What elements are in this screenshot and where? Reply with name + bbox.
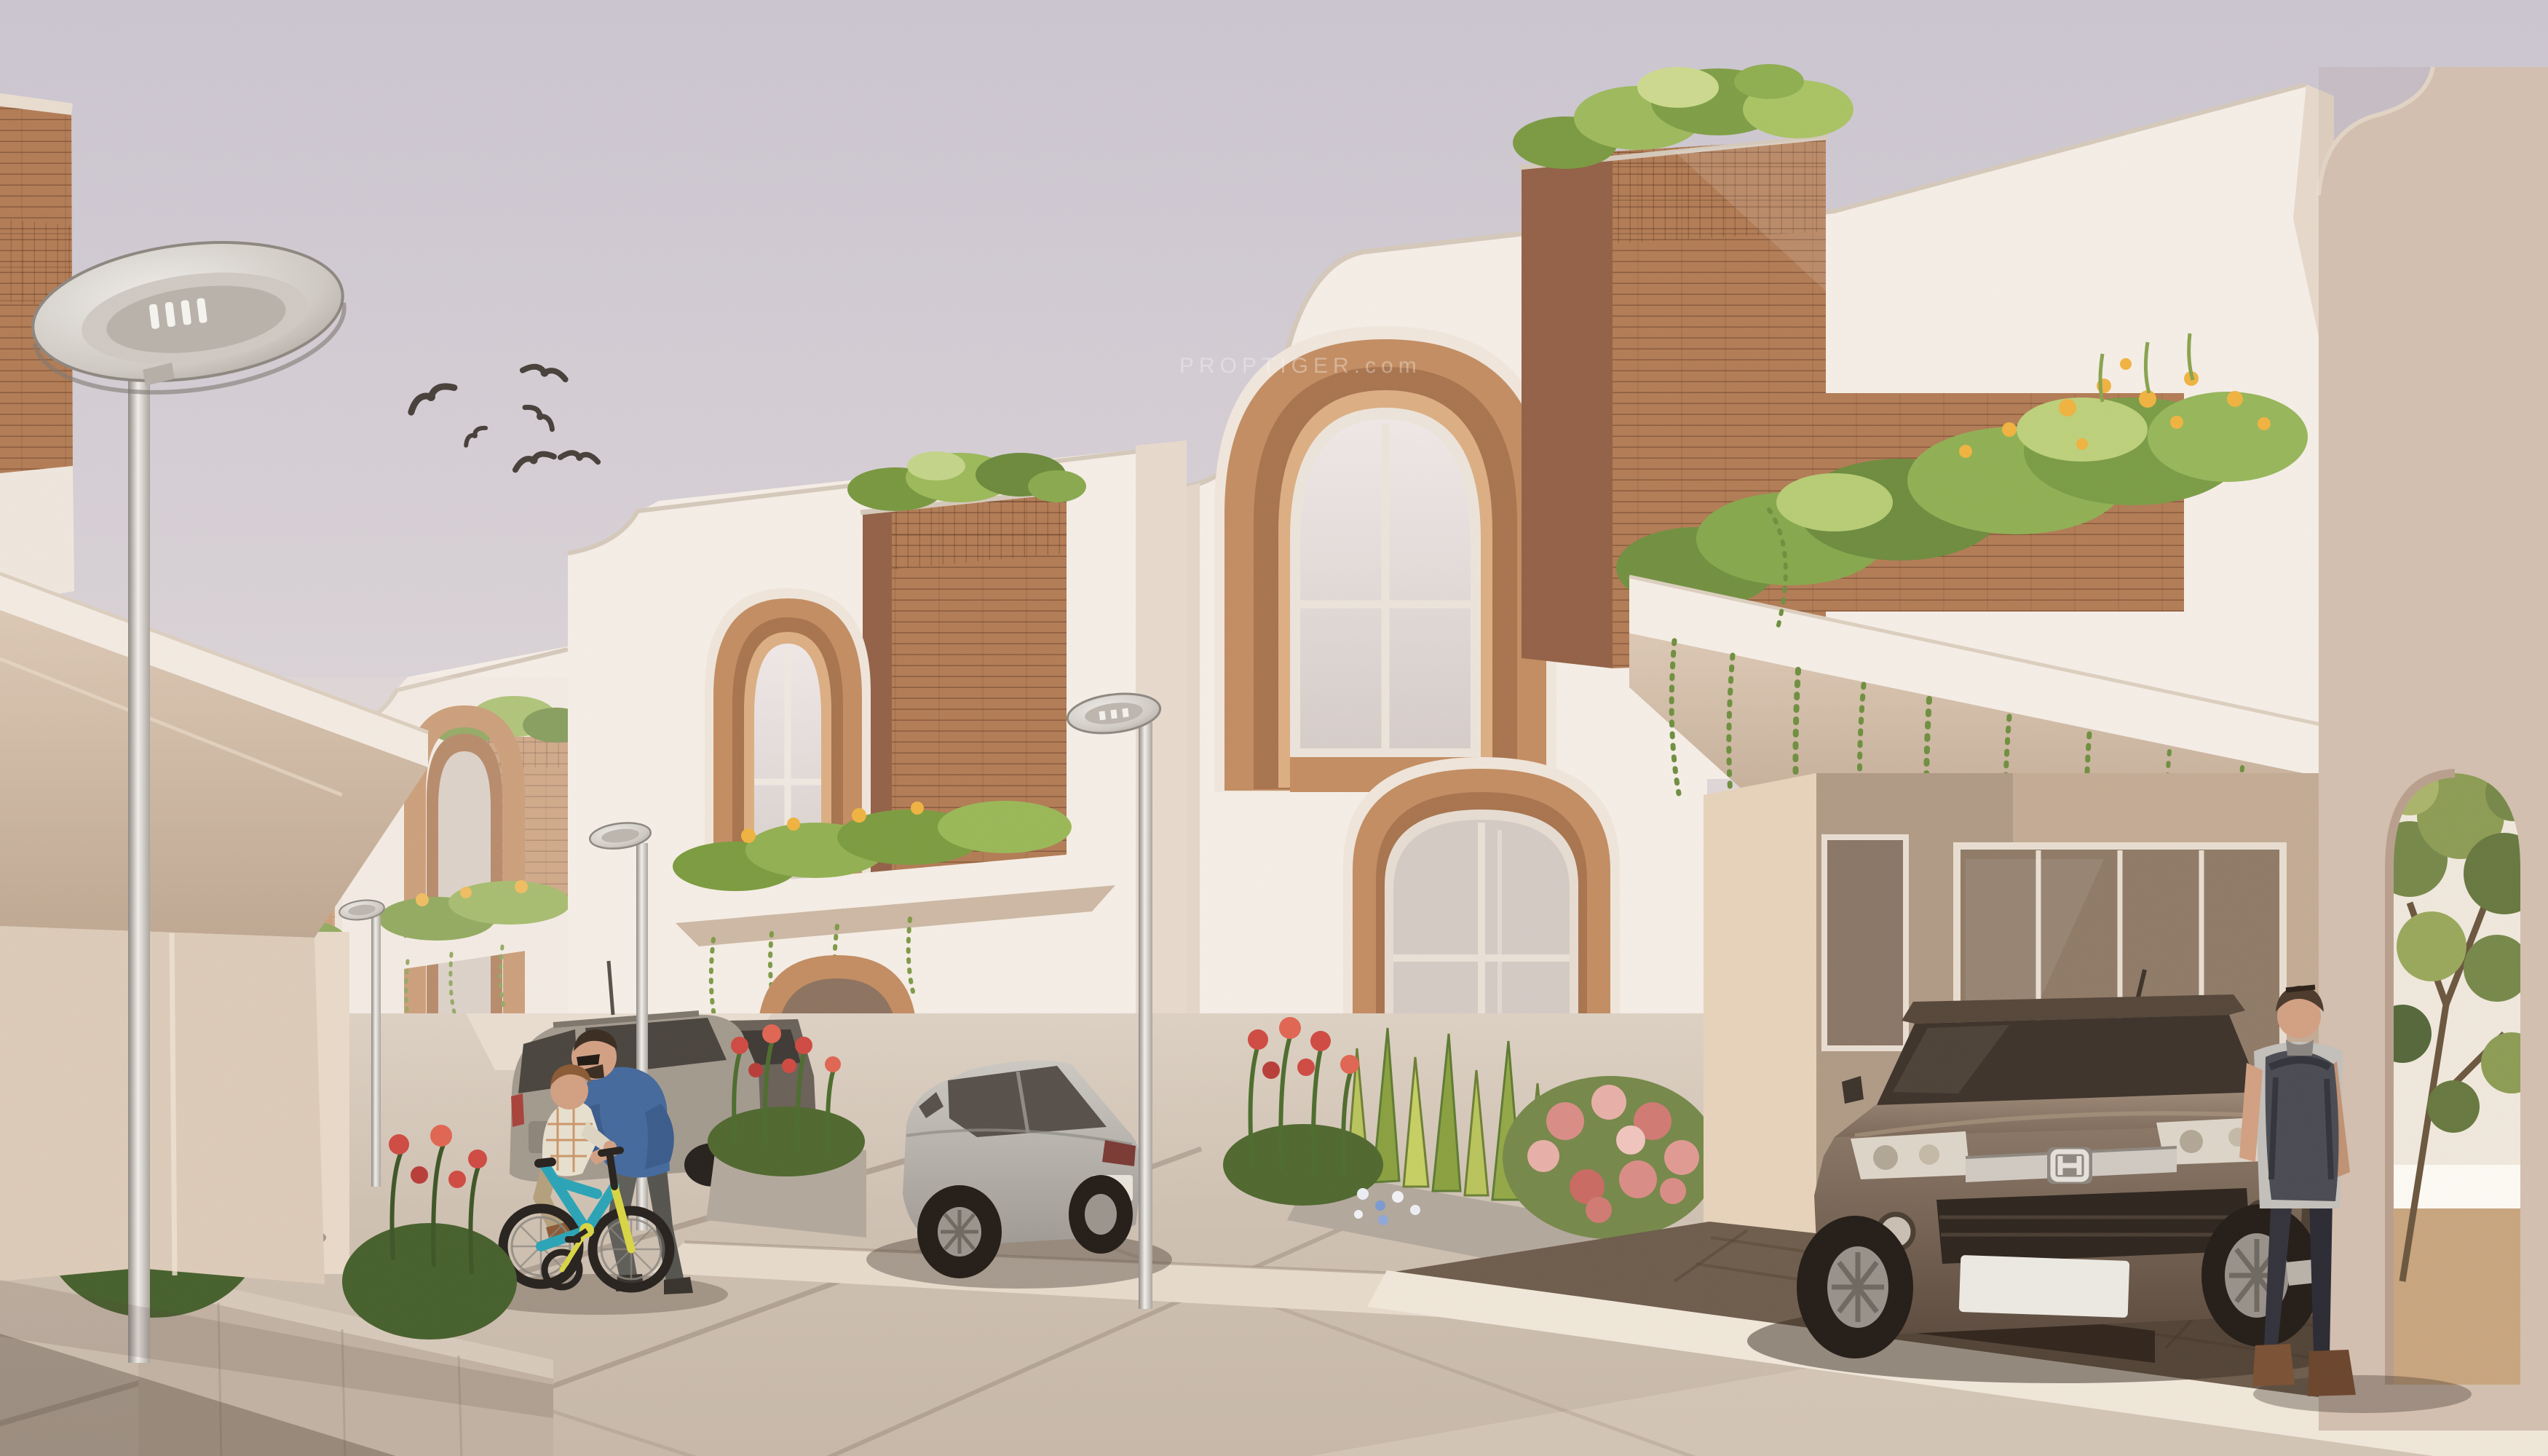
film-grain <box>0 0 2548 1456</box>
architectural-render: PROPTIGER.com <box>0 0 2548 1456</box>
